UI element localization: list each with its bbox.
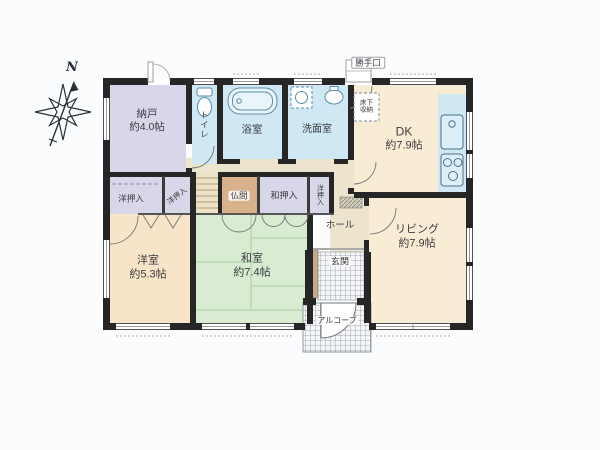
storage-size: 約4.0帖 (129, 121, 165, 134)
room-label-dk: DK 約7.9帖 (385, 125, 422, 154)
room-label-yo-closet-left: 洋押入 (118, 194, 144, 205)
compass-north-label: N (66, 60, 78, 76)
bathtub-icon (228, 88, 277, 114)
compass-icon (35, 82, 91, 146)
room-label-wa-closet: 和押入 (270, 190, 297, 201)
living-size: 約7.9帖 (395, 237, 439, 251)
room-label-toilet: トイレ (199, 111, 210, 140)
room-label-hall: ホール (326, 220, 355, 232)
japanese-size: 約7.4帖 (233, 266, 270, 280)
kitchen-sink-icon (441, 115, 463, 149)
stairs (193, 172, 218, 214)
room-label-bathroom: 浴室 (242, 123, 263, 136)
room-label-living: リビング 約7.9帖 (395, 223, 439, 251)
entrance-step (311, 248, 364, 250)
dk-size: 約7.9帖 (385, 140, 422, 154)
hall-cabinet (340, 197, 362, 208)
room-label-butsuma: 仏間 (228, 191, 249, 201)
underfloor-storage-label: 床下収納 (359, 100, 375, 115)
western-name: 洋室 (129, 254, 166, 268)
room-label-western: 洋室 約5.3帖 (129, 254, 166, 282)
room-label-yo-closet-right: 洋押入 (315, 185, 324, 206)
room-label-entrance: 玄関 (329, 256, 351, 266)
dk-name: DK (385, 125, 422, 140)
washing-machine-icon (291, 87, 312, 108)
living-name: リビング (395, 223, 439, 237)
floor-plan: N 納戸 約4.0帖 トイレ 浴室 洗面室 DK 約7.9帖 リビング 約7.9… (0, 0, 600, 450)
floor-plan-graphic (0, 0, 600, 450)
room-label-japanese: 和室 約7.4帖 (233, 252, 270, 280)
storage-name: 納戸 (129, 108, 165, 121)
japanese-name: 和室 (233, 252, 270, 266)
room-label-storage: 納戸 約4.0帖 (129, 108, 165, 134)
living-area (369, 198, 467, 324)
western-size: 約5.3帖 (129, 268, 166, 282)
stove-icon (441, 154, 463, 186)
room-label-washroom: 洗面室 (302, 124, 332, 137)
back-door-label: 勝手口 (351, 57, 385, 69)
room-label-alcove: アルコーブ (315, 316, 358, 325)
